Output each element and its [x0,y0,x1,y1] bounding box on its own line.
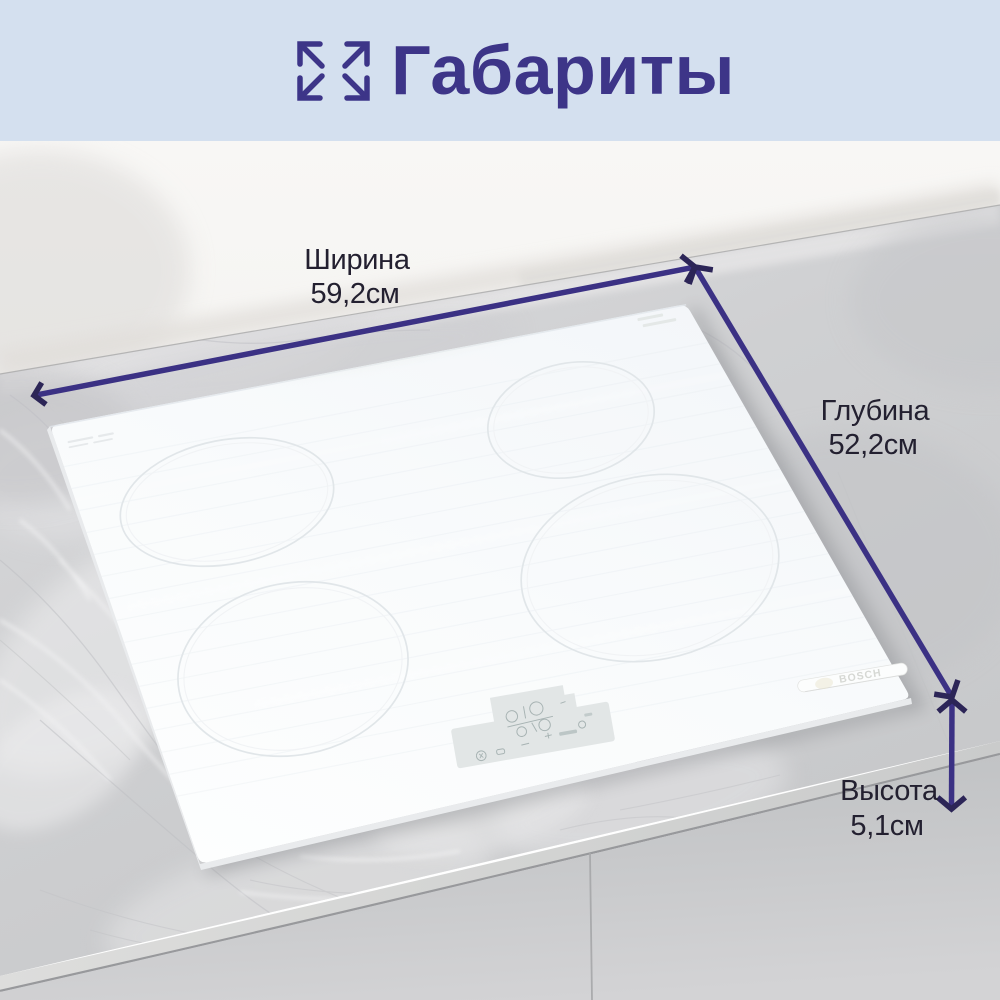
svg-text:Высота: Высота [840,775,939,807]
svg-text:59,2см: 59,2см [310,278,399,310]
svg-text:Глубина: Глубина [821,395,931,427]
svg-text:Габариты: Габариты [391,31,735,109]
svg-text:52,2см: 52,2см [828,429,917,461]
svg-text:5,1см: 5,1см [850,810,923,842]
svg-text:Ширина: Ширина [304,244,411,276]
